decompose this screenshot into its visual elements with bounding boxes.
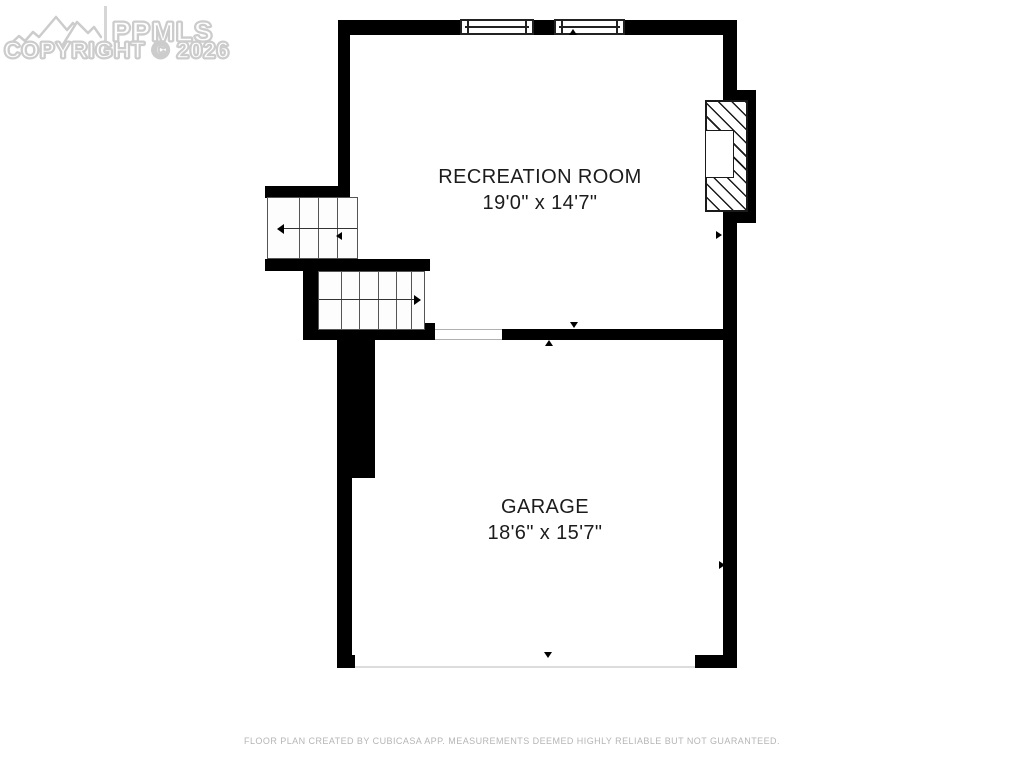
- stair-tread: [359, 272, 360, 329]
- watermark: PPMLS COPYRIGHT © 2026: [4, 4, 234, 72]
- window-icon: [460, 19, 534, 35]
- wall-marker-icon: [336, 232, 342, 240]
- door-opening: [435, 329, 502, 340]
- stair-tread: [378, 272, 379, 329]
- wall-marker-icon: [545, 340, 553, 346]
- wall-divider-right: [502, 329, 737, 340]
- fireplace-firebox: [705, 130, 734, 178]
- stair-arrow-icon: [284, 228, 357, 229]
- stair-arrow-icon: [319, 299, 414, 300]
- stair-tread: [411, 272, 412, 329]
- stair-arrow-head-icon: [277, 224, 284, 234]
- wall-garage-bottom-left-stub: [337, 655, 355, 668]
- footer-disclaimer: FLOOR PLAN CREATED BY CUBICASA APP. MEAS…: [0, 736, 1024, 746]
- wall-garage-bottom-right-stub: [695, 655, 737, 668]
- watermark-copyright: COPYRIGHT © 2026: [4, 37, 230, 64]
- window-glass-line: [465, 26, 529, 28]
- room-dimensions: 18'6" x 15'7": [395, 520, 695, 546]
- stair-tread: [341, 272, 342, 329]
- wall-marker-icon: [716, 231, 722, 239]
- wall-lower-stairs-left: [303, 259, 318, 339]
- garage-door-line: [355, 666, 695, 668]
- staircase-upper: [267, 197, 358, 259]
- window-icon: [554, 19, 625, 35]
- wall-left-recreation: [338, 20, 350, 198]
- floorplan-page: PPMLS COPYRIGHT © 2026: [0, 0, 1024, 767]
- wall-top-right-segment: [625, 20, 737, 35]
- wall-divider-stub: [424, 323, 435, 331]
- wall-marker-icon: [570, 322, 578, 328]
- wall-marker-icon: [344, 561, 350, 569]
- wall-top-mid-segment: [534, 20, 554, 35]
- wall-marker-icon: [719, 561, 725, 569]
- wall-stairs-middle: [265, 259, 430, 271]
- stair-arrow-head-icon: [414, 295, 421, 305]
- stair-tread: [396, 272, 397, 329]
- wall-garage-left: [337, 337, 352, 668]
- wall-top-left-segment: [338, 20, 460, 35]
- staircase-lower: [318, 271, 425, 330]
- room-dimensions: 19'0" x 14'7": [390, 190, 690, 216]
- room-label-recreation: RECREATION ROOM 19'0" x 14'7": [390, 164, 690, 216]
- wall-marker-icon: [569, 29, 577, 35]
- room-label-garage: GARAGE 18'6" x 15'7": [395, 494, 695, 546]
- wall-marker-icon: [544, 652, 552, 658]
- room-name: RECREATION ROOM: [390, 164, 690, 190]
- room-name: GARAGE: [395, 494, 695, 520]
- window-glass-line: [559, 26, 620, 28]
